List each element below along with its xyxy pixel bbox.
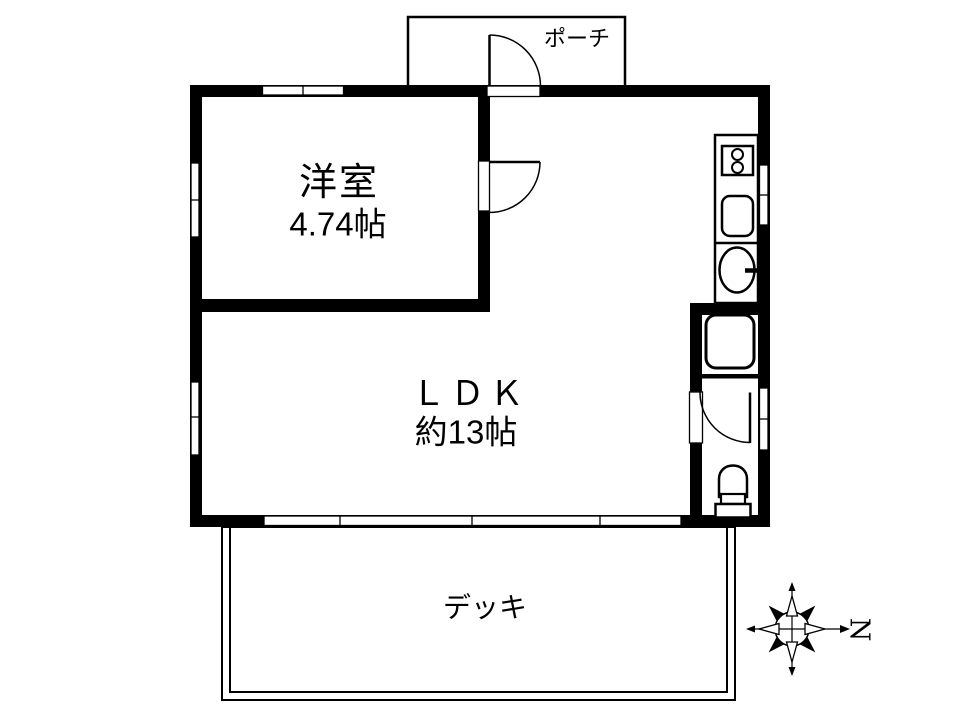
western-room-size-label: 4.74帖 xyxy=(289,208,386,241)
bath-washroom-divider xyxy=(702,374,758,379)
floor-plan: N ポーチ 洋室 4.74帖 ＬＤＫ 約13帖 デッキ xyxy=(0,0,960,720)
window-right-washroom xyxy=(760,388,769,450)
compass-rose: N xyxy=(746,582,875,676)
window-right-kitchen xyxy=(760,165,769,225)
window-top xyxy=(263,86,344,95)
kitchen-counter xyxy=(715,135,759,303)
porch-label: ポーチ xyxy=(544,28,610,50)
window-left-lower xyxy=(191,382,199,455)
toilet-icon xyxy=(716,466,751,518)
western-room-bottom-wall xyxy=(190,299,490,312)
window-left-upper xyxy=(191,163,199,237)
interior-walls xyxy=(190,97,770,515)
bathtub-icon xyxy=(706,315,754,368)
washroom-door-swing-icon xyxy=(690,392,751,443)
kitchen-sink-icon xyxy=(722,196,753,236)
sliding-door-bottom xyxy=(264,516,681,526)
compass-north-label: N xyxy=(844,618,875,642)
two-burner-stove-icon xyxy=(722,146,753,175)
western-room-label: 洋室 xyxy=(299,164,379,202)
ldk-label: ＬＤＫ xyxy=(412,377,529,411)
ldk-size-label: 約13帖 xyxy=(415,416,518,449)
deck-label: デッキ xyxy=(443,594,527,622)
western-room-door-swing-icon xyxy=(479,161,541,213)
